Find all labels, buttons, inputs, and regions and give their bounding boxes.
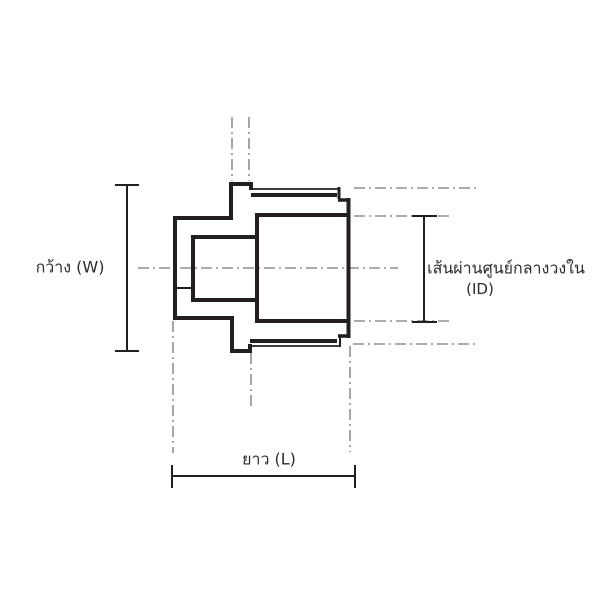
inner-diameter-label: เส้นผ่านศูนย์กลางวงใน — [427, 258, 585, 277]
inner-diameter-abbr-label: (ID) — [466, 280, 494, 298]
width-label: กว้าง (W) — [36, 257, 105, 276]
width-dimension-line — [115, 185, 139, 351]
dimensions — [115, 185, 437, 488]
length-label: ยาว (L) — [242, 449, 296, 468]
technical-drawing-page: กว้าง (W) เส้นผ่านศูนย์กลางวงใน (ID) ยาว… — [0, 0, 600, 600]
centerlines — [138, 117, 478, 453]
drawing-canvas — [0, 0, 600, 600]
